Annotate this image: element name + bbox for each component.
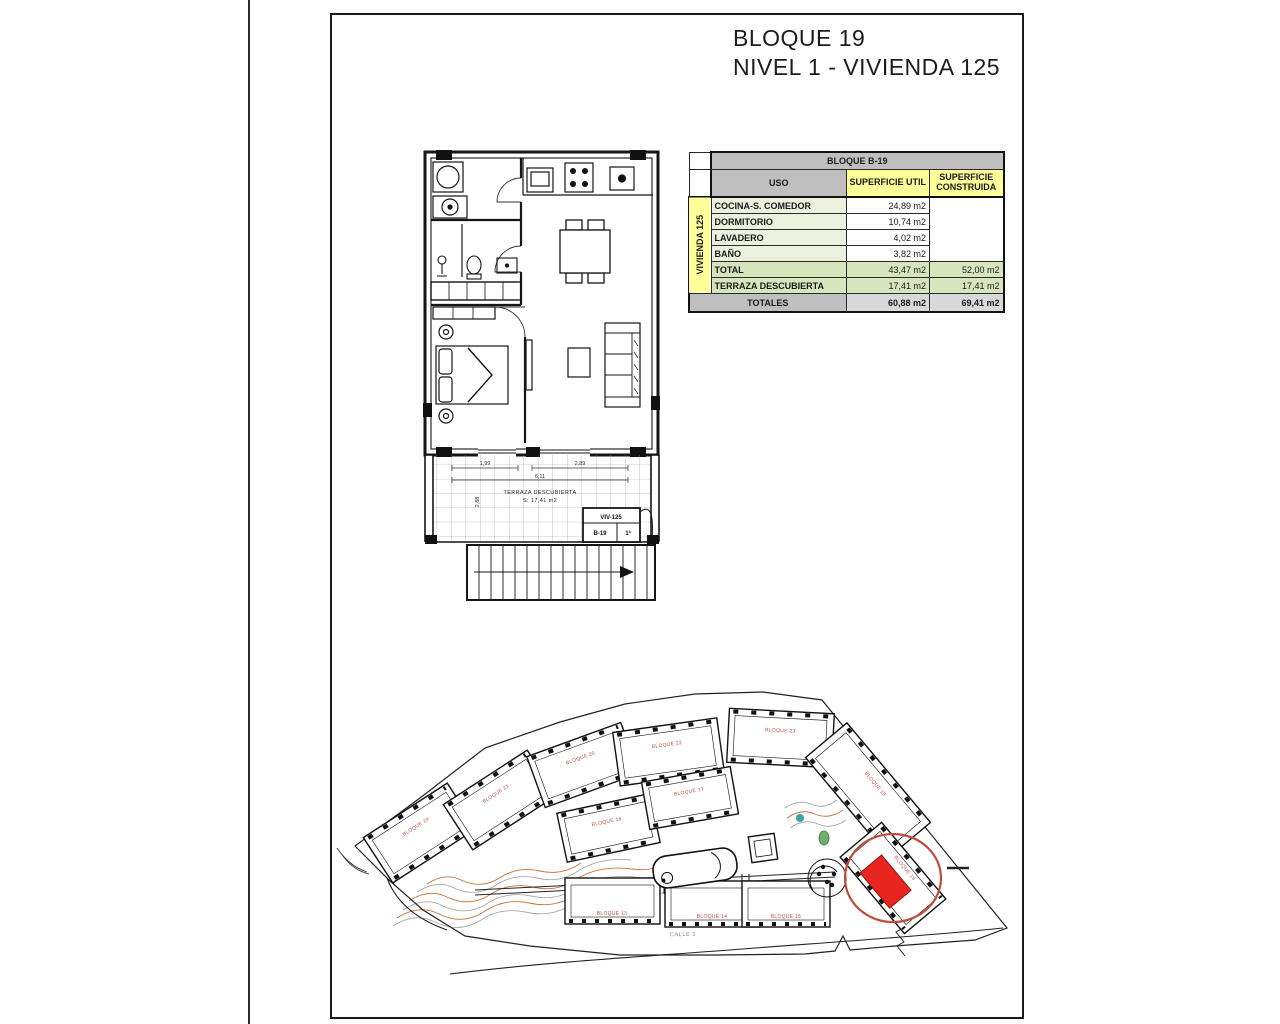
dim-vertical: 2,88 [475, 497, 481, 508]
total-construida-value: 52,00 m2 [930, 262, 1004, 278]
stairs [467, 545, 655, 600]
uso-header: USO [711, 170, 846, 198]
building-bloque-15: BLOQUE 15 [742, 881, 830, 927]
teal-marker [796, 814, 804, 822]
totales-construida-value: 69,41 m2 [930, 294, 1004, 313]
building-bloque-13: BLOQUE 13 [565, 878, 660, 924]
dim-right: 2,89 [575, 461, 586, 467]
room-label: COCINA-S. COMEDOR [711, 197, 846, 214]
room-label: DORMITORIO [711, 214, 846, 230]
unit-tag-top: VIV-125 [600, 515, 622, 521]
totales-label: TOTALES [689, 294, 846, 313]
tree-symbol [819, 831, 829, 845]
totales-util-value: 60,88 m2 [846, 294, 930, 313]
site-entry-curves [337, 848, 369, 874]
title-block: BLOQUE 19 NIVEL 1 - VIVIENDA 125 [733, 24, 1000, 82]
floor-plan: 1,99 2,89 6,11 2,88 TERRAZA DESCUBIERTA … [422, 150, 662, 612]
building-label: BLOQUE 15 [771, 914, 802, 920]
table-block-header: BLOQUE B-19 [711, 152, 1004, 170]
terraza-label: TERRAZA DESCUBIERTA [711, 278, 846, 294]
room-util-value: 10,74 m2 [846, 214, 930, 230]
utility-pad [748, 833, 777, 862]
sheet-margin-line [248, 0, 250, 1024]
title-line-1: BLOQUE 19 [733, 24, 1000, 53]
title-line-2: NIVEL 1 - VIVIENDA 125 [733, 53, 1000, 82]
street-label: CALLE 2 [670, 932, 696, 938]
superficie-construida-header: SUPERFICIE CONSTRUIDA [930, 170, 1004, 198]
site-plan: BLOQUE 24 BLOQUE 21 BLOQUE 20 [335, 678, 1015, 1008]
construida-empty-cell [930, 197, 1004, 262]
total-util-value: 43,47 m2 [846, 262, 930, 278]
dim-total: 6,11 [535, 474, 545, 480]
unit-tag-left: B-19 [593, 531, 607, 537]
table-spacer [689, 152, 711, 170]
building-label: BLOQUE 13 [597, 911, 628, 917]
plan-sheet: BLOQUE 19 NIVEL 1 - VIVIENDA 125 BLOQUE … [0, 0, 1280, 1024]
area-table: BLOQUE B-19 USO SUPERFICIE UTIL SUPERFIC… [688, 151, 1005, 313]
room-label: BAÑO [711, 246, 846, 262]
total-label: TOTAL [711, 262, 846, 278]
terrace-area: S: 17,41 m2 [523, 498, 557, 504]
vivienda-group-label: VIVIENDA 125 [689, 197, 711, 294]
table-spacer [689, 170, 711, 198]
terrace: 1,99 2,89 6,11 2,88 TERRAZA DESCUBIERTA … [425, 455, 659, 544]
room-util-value: 3,82 m2 [846, 246, 930, 262]
unit-tag-right: 1ª [625, 530, 631, 537]
room-util-value: 24,89 m2 [846, 197, 930, 214]
terrace-label: TERRAZA DESCUBIERTA [503, 490, 576, 496]
building-bloque-19: BLOQUE 19 [840, 822, 946, 933]
superficie-util-header: SUPERFICIE UTIL [846, 170, 930, 198]
terraza-construida-value: 17,41 m2 [930, 278, 1004, 294]
terraza-util-value: 17,41 m2 [846, 278, 930, 294]
room-label: LAVADERO [711, 230, 846, 246]
room-util-value: 4,02 m2 [846, 230, 930, 246]
dining-table [560, 220, 610, 283]
building-label: BLOQUE 14 [697, 914, 728, 920]
dim-left: 1,99 [480, 461, 491, 467]
buildings: BLOQUE 24 BLOQUE 21 BLOQUE 20 [363, 708, 945, 933]
